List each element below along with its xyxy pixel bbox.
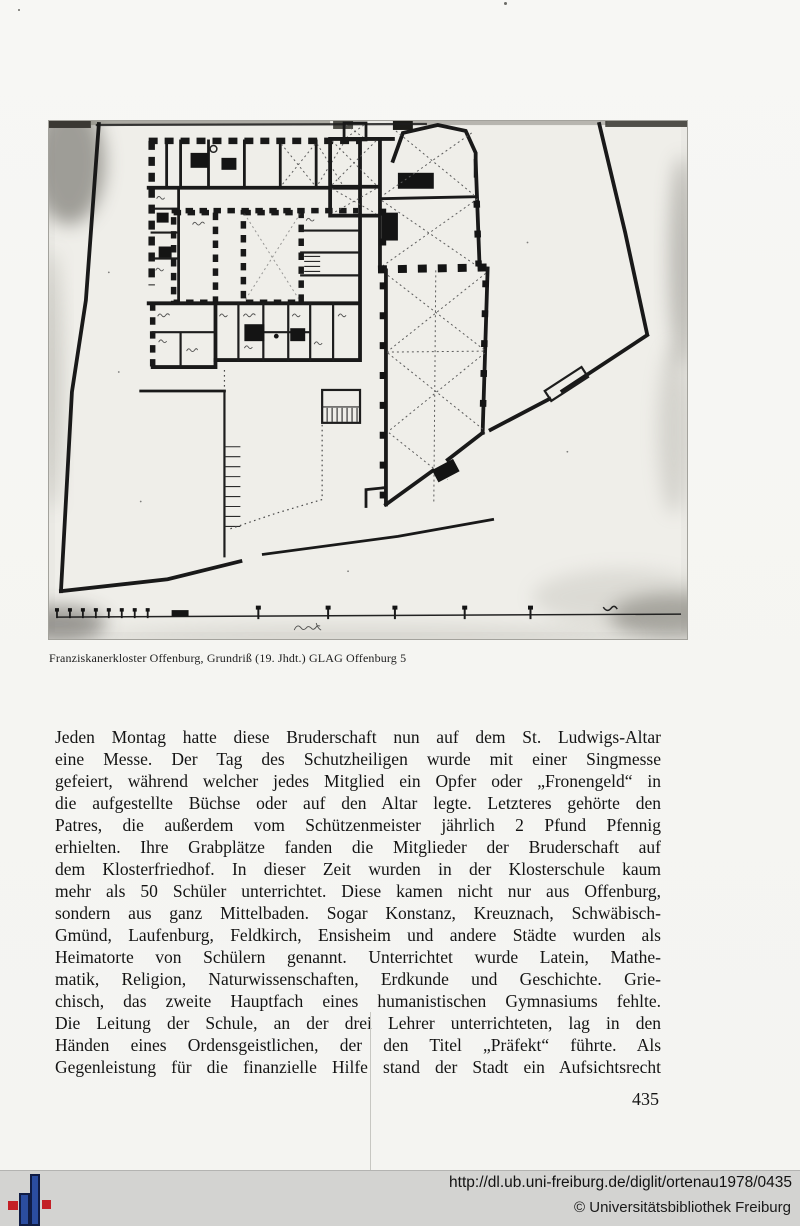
logo-blue-tall-bar: [30, 1174, 40, 1226]
stove: [191, 153, 209, 168]
text-line: gefeiert, während welcher jedes Mitglied…: [55, 770, 661, 792]
monastery-floorplan-figure: [48, 120, 688, 640]
text-line: erhielten. Ihre Grabplätze fanden die Mi…: [55, 836, 661, 858]
text-line: mehr als 50 Schüler unterrichtet. Diese …: [55, 880, 661, 902]
text-line: matik, Religion, Naturwissenschaften, Er…: [55, 968, 661, 990]
copyright-text: © Universitätsbibliothek Freiburg: [574, 1199, 791, 1216]
text-line: Patres, die außerdem vom Schützenmeister…: [55, 814, 661, 836]
logo-red-left-mark: [8, 1201, 18, 1210]
scan-speck: [504, 2, 507, 5]
text-line: chisch, das zweite Hauptfach eines human…: [55, 990, 661, 1012]
ub-freiburg-logo: [0, 1172, 60, 1226]
boundary-top: [97, 124, 426, 125]
stove: [221, 158, 236, 170]
logo-red-right-mark: [42, 1200, 51, 1209]
text-line: sondern aus ganz Mittelbaden. Sogar Kons…: [55, 902, 661, 924]
kitchen-stove: [244, 324, 264, 341]
stove: [290, 328, 305, 341]
body-paragraph: Jeden Montag hatte diese Bruderschaft nu…: [55, 726, 661, 1078]
footer-bar: http://dl.ub.uni-freiburg.de/diglit/orte…: [0, 1170, 800, 1226]
text-line: Gegenleistung für die finanzielle Hilfe …: [55, 1056, 661, 1078]
text-line: Gmünd, Laufenburg, Feldkirch, Ensisheim …: [55, 924, 661, 946]
stove: [157, 213, 169, 223]
page-number: 435: [632, 1089, 659, 1110]
text-line: die aufgestellte Büchse oder auf den Alt…: [55, 792, 661, 814]
scanned-book-page: Franziskanerkloster Offenburg, Grundriß …: [0, 0, 800, 1226]
text-line: dem Klosterfriedhof. In dieser Zeit wurd…: [55, 858, 661, 880]
figure-caption: Franziskanerkloster Offenburg, Grundriß …: [49, 651, 406, 666]
logo-blue-short-bar: [19, 1193, 30, 1226]
floorplan-svg: [49, 121, 687, 639]
tower-stair-block: [382, 213, 398, 241]
text-line: Die Leitung der Schule, an der drei Lehr…: [55, 1012, 661, 1034]
text-line: Händen eines Ordensgeistlichen, der den …: [55, 1034, 661, 1056]
scan-fold-line: [370, 1012, 371, 1170]
stove: [159, 247, 172, 258]
source-url-link[interactable]: http://dl.ub.uni-freiburg.de/diglit/orte…: [449, 1174, 792, 1192]
text-line: Heimatorte von Schülern genannt. Unterri…: [55, 946, 661, 968]
text-line: eine Messe. Der Tag des Schutzheiligen w…: [55, 748, 661, 770]
altar-block: [398, 173, 434, 189]
text-line: Jeden Montag hatte diese Bruderschaft nu…: [55, 726, 661, 748]
scan-speck: [18, 9, 20, 11]
